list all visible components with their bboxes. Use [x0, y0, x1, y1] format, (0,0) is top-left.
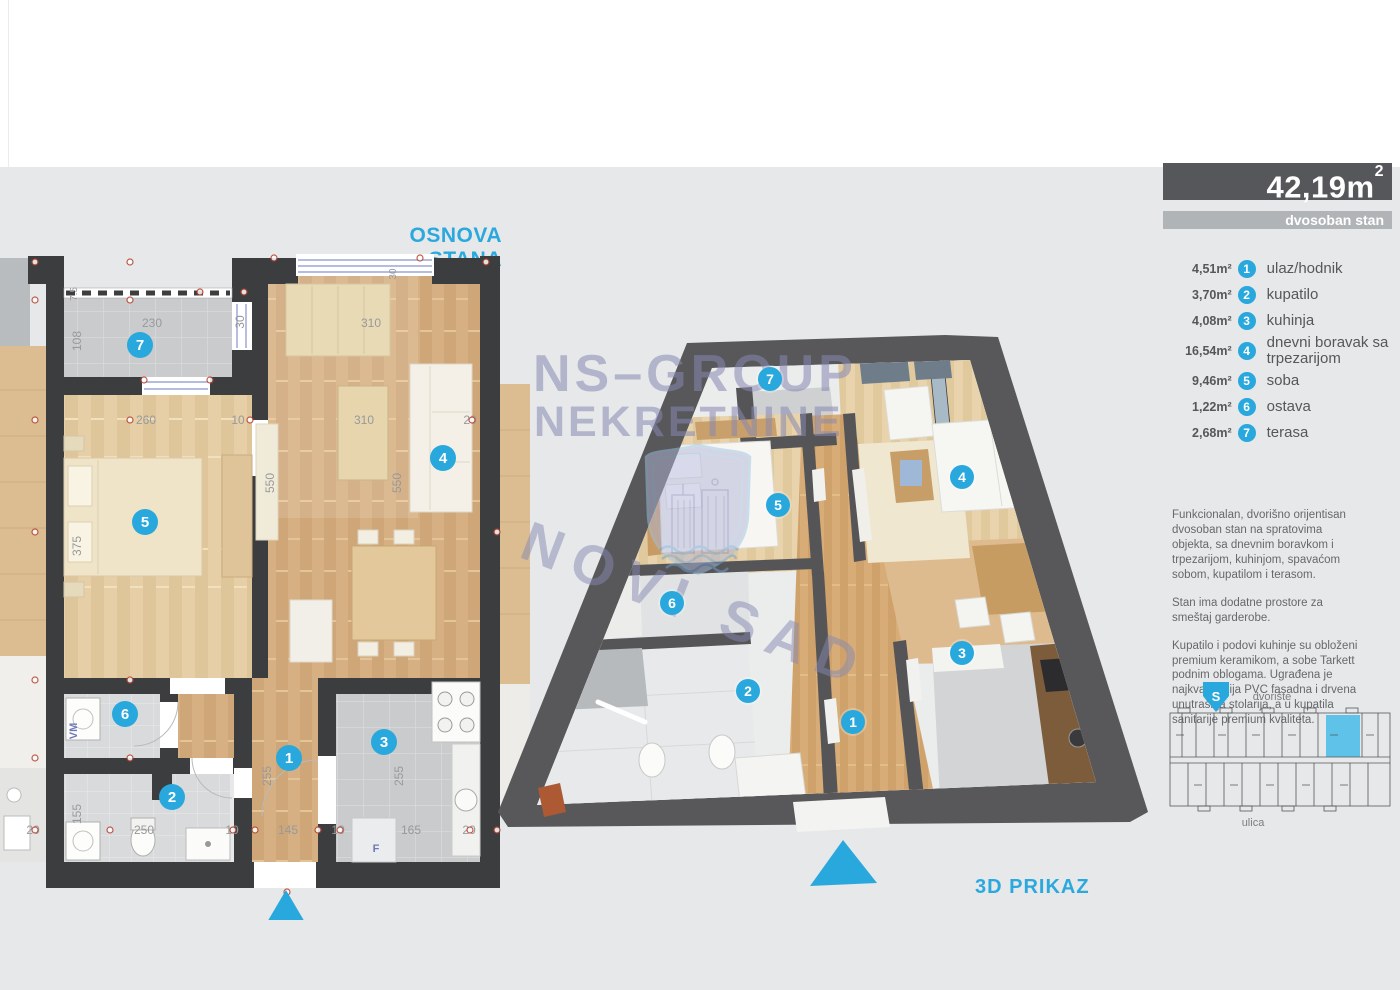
room-label: kuhinja: [1267, 313, 1400, 329]
svg-text:7.5: 7.5: [69, 287, 80, 301]
room-area: 1,22m²: [1163, 400, 1232, 414]
unit-type-bar: dvosoban stan: [1163, 211, 1392, 229]
floorplan-sheet: OSNOVA STANA: [0, 0, 1400, 990]
room-area: 16,54m²: [1163, 344, 1232, 358]
entrance-threshold-3d: [793, 797, 890, 832]
room-label: terasa: [1267, 425, 1400, 441]
room-number-badge: 3: [1238, 312, 1256, 330]
svg-text:550: 550: [390, 473, 404, 493]
entrance-arrow-icon: [266, 890, 306, 920]
svg-text:255: 255: [392, 766, 406, 786]
room-area: 3,70m²: [1163, 288, 1232, 302]
total-area-bar: 42,19m2: [1163, 163, 1392, 200]
room-area: 9,46m²: [1163, 374, 1232, 388]
room-number-badge: 4: [1238, 342, 1256, 360]
room-label: dnevni boravak sa trpezarijom: [1267, 335, 1400, 367]
total-area-sup: 2: [1375, 163, 1384, 180]
room-label: ostava: [1267, 399, 1400, 415]
street-label: ulica: [1242, 817, 1266, 829]
room-row-terasa: 2,68m² 7 terasa: [1163, 420, 1400, 446]
svg-text:1: 1: [285, 750, 293, 767]
svg-text:550: 550: [263, 473, 277, 493]
room-number-badge: 7: [1238, 424, 1256, 442]
room-row-kuhinja: 4,08m² 3 kuhinja: [1163, 308, 1400, 334]
svg-text:230: 230: [142, 316, 162, 330]
room-area: 4,08m²: [1163, 314, 1232, 328]
room-number-badge: 5: [1238, 372, 1256, 390]
svg-text:165: 165: [401, 823, 421, 837]
room-row-ostava: 1,22m² 6 ostava: [1163, 394, 1400, 420]
compass-letter: S: [1212, 689, 1221, 704]
room-label: ulaz/hodnik: [1267, 261, 1400, 277]
svg-text:3: 3: [380, 734, 388, 751]
svg-text:260: 260: [136, 413, 156, 427]
entrance-arrow-3d-icon: [810, 840, 877, 886]
courtyard-label: dvorište: [1253, 691, 1292, 703]
svg-text:375: 375: [70, 536, 84, 556]
svg-text:250: 250: [134, 823, 154, 837]
plan-3d-drawing: [490, 330, 1160, 910]
badge-3d-ulaz: 1: [841, 710, 865, 734]
building-position-diagram: dvorište S ulica: [1163, 675, 1400, 835]
svg-text:4: 4: [439, 450, 448, 467]
room-row-kupatilo: 3,70m² 2 kupatilo: [1163, 282, 1400, 308]
room-label: soba: [1267, 373, 1400, 389]
svg-text:6: 6: [121, 706, 129, 723]
room-area: 2,68m²: [1163, 426, 1232, 440]
badge-3d-kupatilo: 2: [736, 679, 760, 703]
svg-text:30: 30: [388, 268, 399, 280]
left-margin-line: [8, 0, 9, 167]
svg-text:310: 310: [361, 316, 381, 330]
room-number-badge: 6: [1238, 398, 1256, 416]
svg-text:145: 145: [278, 823, 298, 837]
badge-3d-ostava: 6: [660, 591, 684, 615]
total-area-value: 42,19m: [1266, 169, 1374, 204]
plan-2d-drawing: 230 108 7.5 30 30 310 260 10 310 20 375 …: [0, 220, 530, 920]
badge-3d-dnevni: 4: [950, 465, 974, 489]
badge-3d-kuhinja: 3: [950, 641, 974, 665]
svg-text:10: 10: [231, 413, 245, 427]
svg-text:F: F: [373, 843, 380, 855]
highlighted-unit: [1326, 715, 1360, 757]
svg-text:255: 255: [260, 766, 274, 786]
description-paragraph: Funkcionalan, dvorišno orijentisan dvoso…: [1172, 508, 1364, 583]
badge-3d-soba: 5: [766, 493, 790, 517]
svg-text:VM: VM: [68, 723, 80, 740]
svg-text:7: 7: [136, 337, 144, 354]
svg-text:155: 155: [70, 804, 84, 824]
svg-text:108: 108: [70, 331, 84, 351]
room-row-dnevni-boravak: 16,54m² 4 dnevni boravak sa trpezarijom: [1163, 334, 1400, 368]
svg-text:5: 5: [141, 514, 149, 531]
svg-text:30: 30: [233, 315, 247, 329]
room-list: 4,51m² 1 ulaz/hodnik 3,70m² 2 kupatilo 4…: [1163, 256, 1400, 446]
room-row-soba: 9,46m² 5 soba: [1163, 368, 1400, 394]
room-label: kupatilo: [1267, 287, 1400, 303]
room-area: 4,51m²: [1163, 262, 1232, 276]
room-number-badge: 1: [1238, 260, 1256, 278]
badge-3d-terasa: 7: [758, 367, 782, 391]
description-paragraph: Stan ima dodatne prostore za smeštaj gar…: [1172, 596, 1364, 626]
room-number-badge: 2: [1238, 286, 1256, 304]
svg-text:310: 310: [354, 413, 374, 427]
svg-text:2: 2: [168, 789, 176, 806]
room-row-ulaz: 4,51m² 1 ulaz/hodnik: [1163, 256, 1400, 282]
